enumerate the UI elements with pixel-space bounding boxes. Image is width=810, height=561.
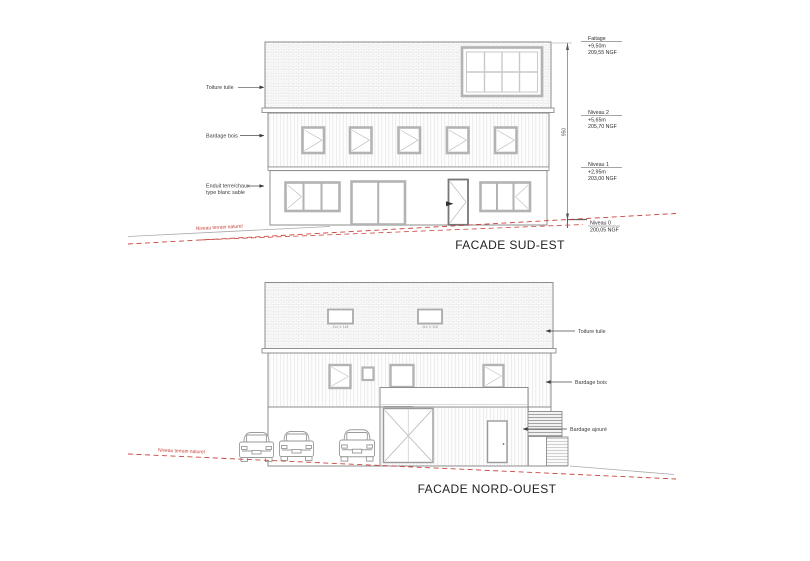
label-enduit-line1: Enduit terre/chaux — [206, 184, 250, 190]
garage-roof-band — [380, 388, 528, 408]
velux-size-label: 114 X 118 — [333, 325, 349, 329]
terrain-label-nordouest: Niveau terrain naturel — [158, 448, 205, 456]
material-labels-sudest: Toiture tuile Bardage bois Enduit terre/… — [206, 85, 264, 196]
level-name: Niveau 1 — [588, 162, 609, 168]
level-name: Faitage — [588, 36, 606, 42]
level-annotations: Faitage +9,50m 209,55 NGF Niveau 2 +5,65… — [568, 36, 623, 234]
window-upper-middle — [391, 365, 414, 387]
level-height: +5,65m — [588, 118, 606, 124]
window-level2-4 — [447, 128, 469, 154]
level-niveau2: Niveau 2 +5,65m 205,70 NGF — [581, 110, 622, 130]
velux-size-label: 114 X 118 — [422, 325, 438, 329]
elevation-drawing-canvas: 950 Toiture tuile Bardage bois Enduit te… — [0, 0, 810, 561]
title-facade-sud-est: FACADE SUD-EST — [455, 238, 565, 252]
roof-tiles-nordouest — [265, 283, 553, 349]
level-name: Niveau 2 — [588, 110, 609, 116]
window-upper-right — [484, 365, 504, 388]
title-facade-nord-ouest: FACADE NORD-OUEST — [418, 482, 557, 496]
door-handle — [503, 443, 505, 445]
entry-door — [446, 180, 468, 225]
window-level2-2 — [350, 128, 372, 154]
window-small-square — [363, 368, 374, 381]
floor-band-sudest — [268, 167, 549, 171]
garage-side-door — [488, 421, 508, 463]
label-toiture-tuile: Toiture tuile — [206, 85, 234, 91]
terrain-label-sudest: Niveau terrain naturel — [196, 224, 243, 232]
ground-window-right — [481, 183, 531, 212]
label-enduit-line2: type blanc sable — [206, 190, 245, 196]
exterior-stairs — [547, 437, 569, 466]
level-ngf: 203,00 NGF — [588, 176, 618, 182]
label-bardage-ajoure: Bardage ajouré — [570, 427, 607, 433]
architectural-drawing-sheet: 950 Toiture tuile Bardage bois Enduit te… — [0, 0, 810, 561]
car-3 — [340, 430, 375, 461]
dimension-value: 950 — [562, 128, 568, 137]
window-upper-left — [330, 365, 351, 388]
parked-cars — [240, 430, 375, 462]
garage-volume — [380, 388, 528, 467]
level-faitage: Faitage +9,50m 209,55 NGF — [581, 36, 622, 56]
level-ngf: 205,70 NGF — [588, 124, 618, 130]
level-name: Niveau 0 — [590, 221, 611, 227]
height-dimension: 950 — [552, 43, 572, 221]
level-ngf: 209,55 NGF — [588, 50, 618, 56]
car-1 — [240, 433, 274, 462]
french-door — [352, 182, 406, 225]
car-2 — [280, 432, 314, 461]
roof-eaves-sudest — [262, 108, 554, 113]
label-bardage-bois-2: Bardage bois — [575, 380, 607, 386]
window-level2-1 — [303, 128, 325, 154]
roof-window-sudest — [462, 48, 542, 97]
bardage-ajoure-panel — [528, 412, 562, 437]
facade-sud-est: 950 Toiture tuile Bardage bois Enduit te… — [128, 36, 676, 252]
garage-door — [384, 409, 434, 463]
level-niveau0: Niveau 0 200,05 NGF — [568, 220, 621, 234]
roof-eaves-nordouest — [262, 349, 556, 354]
level-ngf: 200,05 NGF — [590, 228, 620, 234]
window-level2-3 — [399, 128, 421, 154]
window-level2-5 — [495, 128, 517, 154]
level-height: +9,50m — [588, 44, 606, 50]
label-bardage-bois: Bardage bois — [206, 134, 238, 140]
facade-nord-ouest: 114 X 118 114 X 118 — [128, 283, 676, 497]
level-height: +2,95m — [588, 170, 606, 176]
label-toiture-tuile-2: Toiture tuile — [578, 329, 606, 335]
level-niveau1: Niveau 1 +2,95m 203,00 NGF — [581, 162, 622, 182]
terrain-solid-line-nordouest — [570, 466, 674, 475]
ground-window-left — [286, 183, 340, 212]
